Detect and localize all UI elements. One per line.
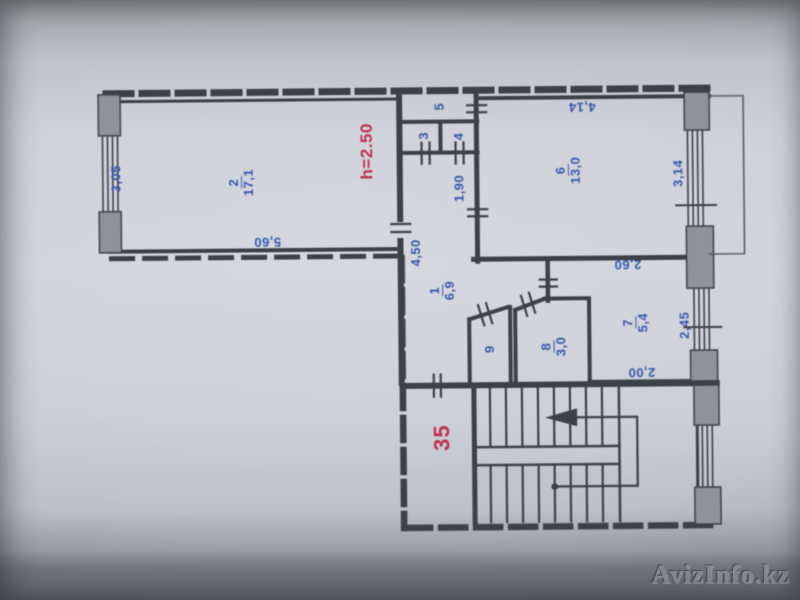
dim-hall-side: 4,50 <box>409 239 422 266</box>
room-6-label: 613,0 <box>554 157 584 185</box>
stair-direction-arrow <box>545 408 638 490</box>
unit-number-note: 35 <box>431 424 453 451</box>
ceiling-height-note: h=2.50 <box>358 123 376 180</box>
floor-plan-photo: 217,1 3,05 5,60 h=2.50 5 3 4 1,90 4,50 1… <box>0 0 800 600</box>
room-3-label: 3 <box>417 132 430 140</box>
floor-plan: 217,1 3,05 5,60 h=2.50 5 3 4 1,90 4,50 1… <box>0 0 800 600</box>
closet-walls <box>401 121 477 164</box>
room-7-walls <box>540 259 698 383</box>
dim-room6-top: 4,14 <box>568 101 595 114</box>
room-2-label: 217,1 <box>227 169 257 197</box>
room-9-label: 9 <box>483 345 496 353</box>
room-8-label: 83,0 <box>540 337 570 357</box>
dim-room7-top: 2,60 <box>614 258 641 271</box>
dim-corridor: 1,90 <box>452 175 465 202</box>
room-5-label: 5 <box>433 103 446 111</box>
floor-plan-drawing <box>0 0 800 600</box>
dim-room7-side: 2,45 <box>678 312 691 339</box>
room-1-label: 16,9 <box>428 281 458 301</box>
room-4-label: 4 <box>452 133 465 141</box>
dim-room2-side: 3,05 <box>109 165 122 192</box>
stairwell-window <box>694 385 721 524</box>
watermark: AvizInfo.kz <box>652 560 790 590</box>
dim-room2-bottom: 5,60 <box>254 236 281 249</box>
dim-room6-side: 3,14 <box>671 160 684 187</box>
room-9-walls <box>469 303 511 383</box>
room-7-label: 75,4 <box>621 313 651 333</box>
dim-room7-bottom: 2,00 <box>628 366 655 379</box>
